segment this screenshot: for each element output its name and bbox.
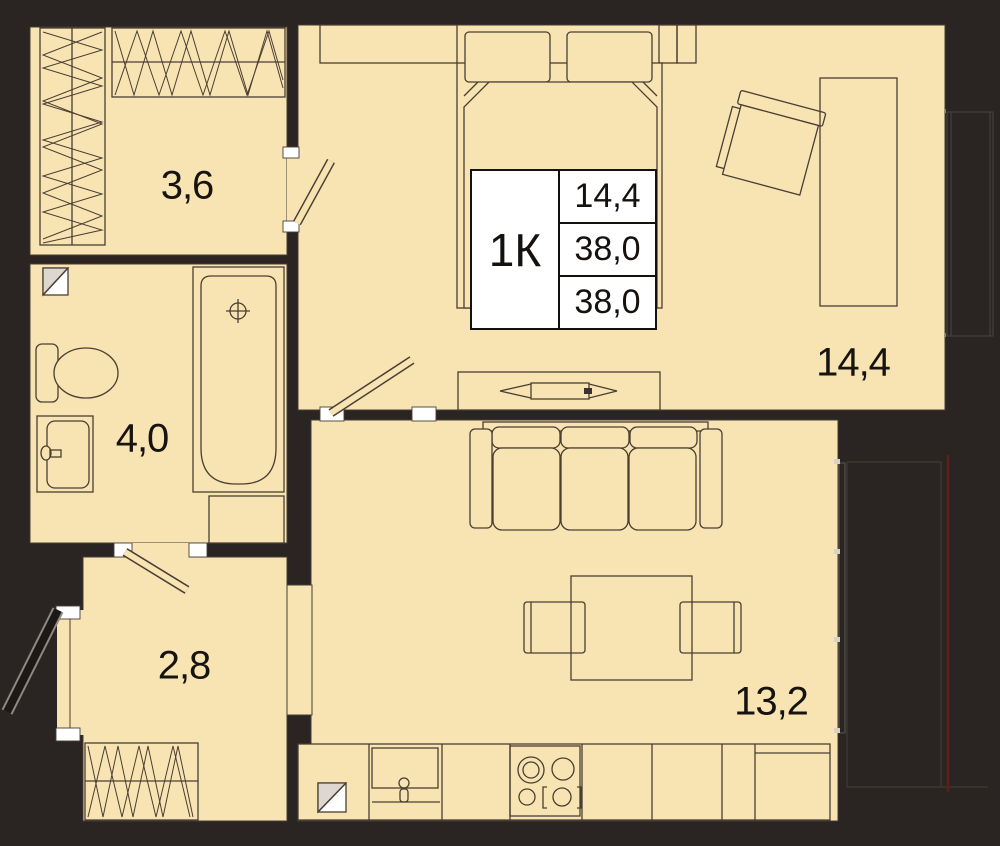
pillow-right — [567, 32, 652, 82]
room-bathroom-floor — [30, 264, 287, 543]
room-label-hallway: 2,8 — [158, 644, 211, 689]
total-area-with-balcony-value: 38,0 — [560, 277, 655, 328]
opening-wardrobe-bedroom — [287, 157, 299, 222]
sofa-armrest-right — [700, 429, 722, 528]
floor-plan: 3,6 4,0 2,8 14,4 13,2 1К 14,4 38,0 38,0 — [0, 0, 1000, 846]
tv-stand-icon — [458, 372, 660, 410]
toilet-icon — [36, 344, 118, 402]
room-label-bedroom: 14,4 — [816, 341, 890, 386]
sofa-armrest-left — [470, 429, 492, 528]
chair-right — [680, 602, 741, 653]
pillow-left — [465, 32, 550, 82]
living-area-value: 14,4 — [560, 171, 655, 224]
room-wardrobe-floor — [30, 27, 287, 255]
area-values: 14,4 38,0 38,0 — [560, 171, 655, 328]
room-label-bathroom: 4,0 — [116, 417, 169, 462]
chair-left — [524, 602, 585, 653]
vent-shaft-icon — [43, 268, 68, 295]
total-area-value: 38,0 — [560, 224, 655, 277]
sofa-icon — [470, 422, 722, 530]
unit-type-label: 1К — [472, 171, 560, 328]
apartment-info-box: 1К 14,4 38,0 38,0 — [470, 169, 657, 330]
room-label-kitchen-living: 13,2 — [734, 680, 808, 725]
room-label-wardrobe: 3,6 — [161, 164, 214, 209]
kitchen-vent-icon — [318, 783, 346, 812]
opening-bathroom-hallway — [132, 543, 190, 558]
opening-hallway-living — [287, 585, 312, 715]
